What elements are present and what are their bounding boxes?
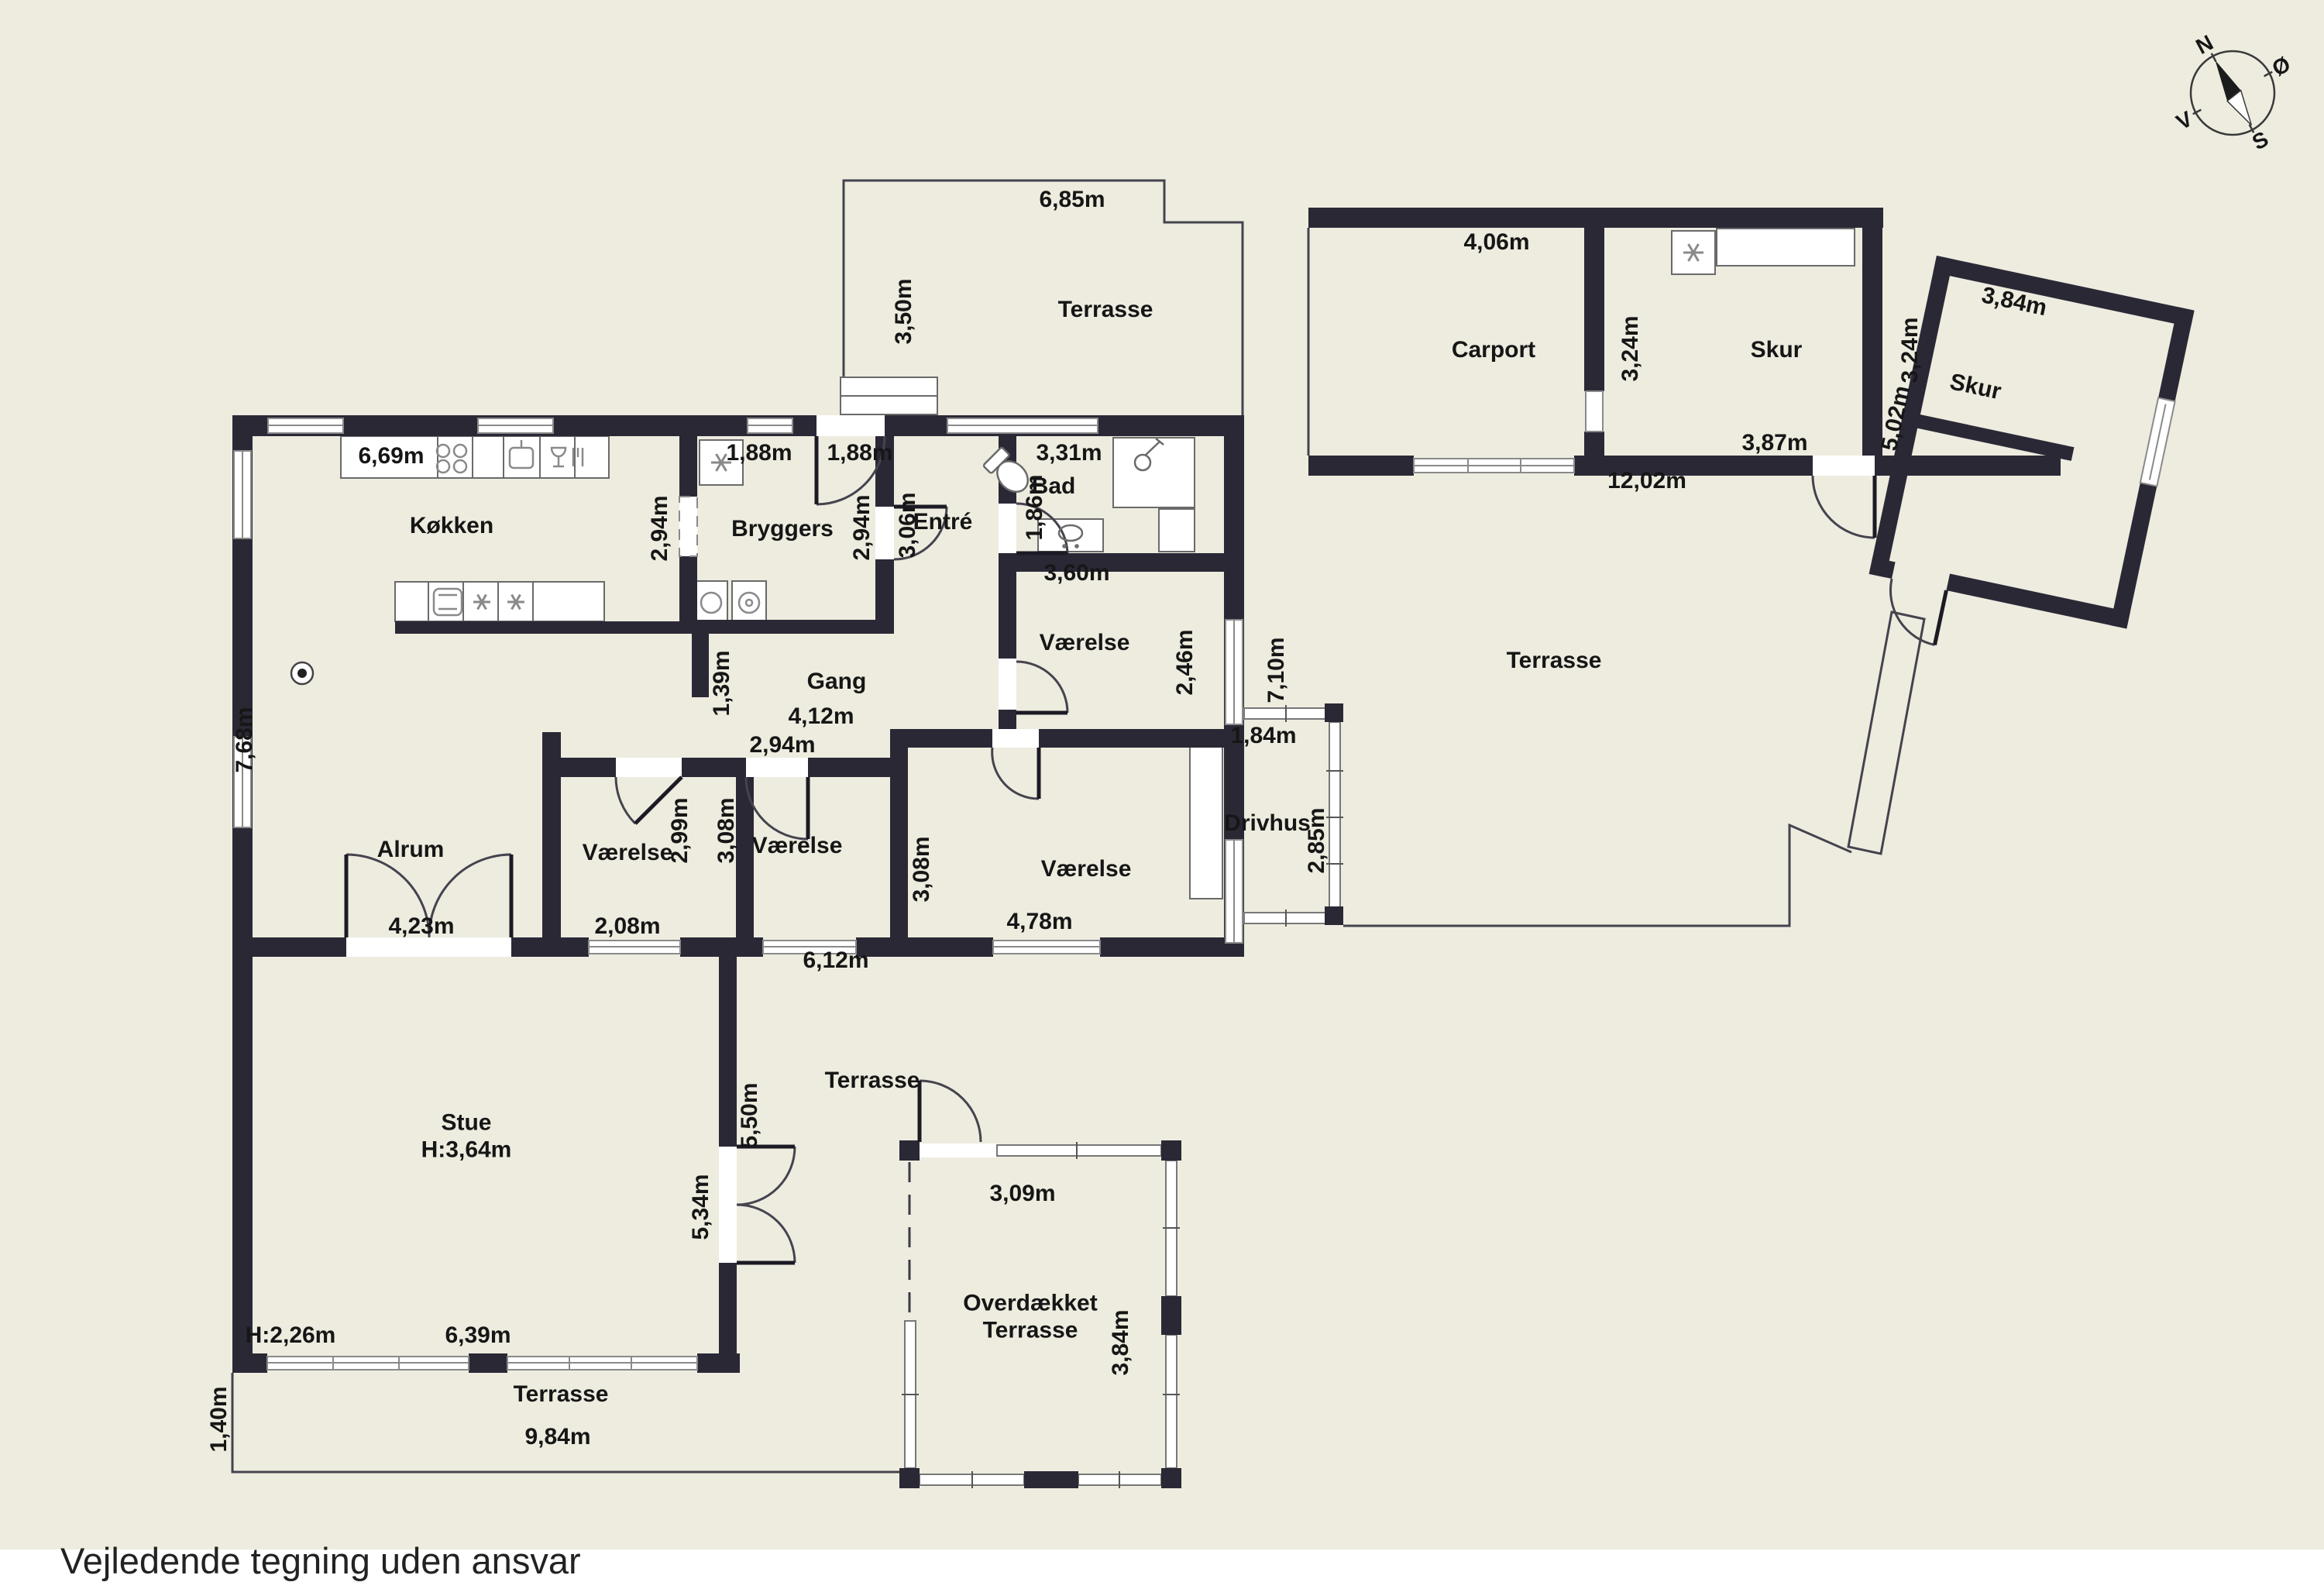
dim-label: 4,06m — [1463, 229, 1529, 256]
room-label-terrasse-top: Terrasse — [1058, 297, 1153, 324]
dim-label: 4,78m — [1006, 909, 1072, 936]
dim-label: 1,39m — [709, 650, 736, 716]
dim-label: 3,24m — [1618, 315, 1645, 381]
dim-label: H:2,26m — [246, 1322, 336, 1350]
dim-label: 2,94m — [849, 494, 876, 560]
ceiling-lamp-icon — [291, 662, 313, 684]
dim-label: 12,02m — [1607, 468, 1686, 495]
room-label-koekken: Køkken — [410, 513, 493, 540]
dim-label: 3,50m — [891, 278, 918, 344]
room-label-entre: Entré — [913, 509, 973, 536]
dim-label: 3,24m — [1897, 317, 1924, 383]
dim-label: 3,60m — [1043, 560, 1109, 587]
dim-label: 1,40m — [206, 1386, 233, 1452]
floor-plan-page: Terrasse Carport Skur Skur Terrasse Køkk… — [0, 0, 2324, 1549]
dim-label: 1,86m — [1022, 474, 1049, 540]
room-label-gang: Gang — [807, 669, 867, 696]
room-label-vaerelse-1: Værelse — [583, 840, 673, 867]
room-label-skur-1: Skur — [1751, 337, 1803, 364]
dim-label: 5,34m — [688, 1174, 715, 1240]
dim-label: 5,50m — [737, 1082, 764, 1148]
room-label-stue: Stue H:3,64m — [421, 1110, 512, 1164]
dim-label: 7,10m — [1263, 637, 1291, 703]
dim-label: 3,87m — [1741, 430, 1807, 457]
disclaimer-text: Vejledende tegning uden ansvar — [60, 1540, 581, 1582]
floor-plan-drawing — [0, 0, 2324, 1549]
room-label-vaerelse-2: Værelse — [752, 833, 843, 860]
dim-label: 2,85m — [1304, 807, 1331, 873]
entry-door-opening — [816, 415, 885, 436]
room-label-terrasse-bottom: Terrasse — [514, 1381, 609, 1408]
dim-label: 3,06m — [895, 492, 922, 558]
room-label-overdaekket: Overdækket Terrasse — [963, 1291, 1097, 1344]
kitchen-island — [395, 582, 604, 621]
room-label-terrasse-mid: Terrasse — [825, 1068, 920, 1095]
room-label-terrasse-east: Terrasse — [1507, 648, 1602, 675]
room-label-alrum: Alrum — [377, 837, 445, 864]
walls — [232, 208, 2061, 1373]
entry-step — [841, 396, 937, 414]
dim-label: 2,94m — [647, 495, 674, 561]
washing-machine — [732, 581, 766, 621]
dim-label: 4,12m — [788, 703, 854, 731]
dim-label: 1,88m — [827, 440, 892, 467]
dim-label: 3,84m — [1108, 1309, 1135, 1375]
bath-cabinet — [1159, 509, 1195, 552]
dim-label: 2,94m — [749, 732, 815, 759]
room-label-vaerelse-3: Værelse — [1041, 856, 1132, 883]
room-label-drivhus: Drivhus — [1224, 810, 1311, 837]
wardrobe — [1190, 732, 1222, 899]
dim-label: 2,08m — [594, 913, 660, 941]
right-terrace-outline — [1343, 825, 1851, 926]
dim-label: 9,84m — [524, 1424, 590, 1451]
door-opening — [920, 1144, 997, 1157]
dim-label: 6,85m — [1039, 187, 1105, 214]
dim-label: 3,31m — [1036, 440, 1102, 467]
dim-label: 3,09m — [989, 1181, 1055, 1208]
dim-label: 2,99m — [667, 797, 694, 863]
dim-label: 1,88m — [726, 440, 792, 467]
dim-label: 3,08m — [713, 797, 741, 863]
dim-label: 3,08m — [909, 836, 936, 902]
room-label-bryggers: Bryggers — [731, 516, 834, 543]
dim-label: 6,39m — [445, 1322, 511, 1350]
dim-label: 6,69m — [358, 443, 424, 470]
dim-label: 2,46m — [1172, 629, 1199, 695]
compass-icon — [2172, 33, 2294, 154]
room-label-vaerelse-ne: Værelse — [1040, 630, 1130, 657]
entry-step — [841, 377, 937, 396]
workbench — [1717, 229, 1855, 266]
dim-label: 4,23m — [388, 913, 454, 941]
washing-machine — [695, 581, 727, 621]
dim-label: 7,68m — [232, 707, 259, 772]
terrace-outlines — [232, 181, 1924, 1472]
ramp-outline — [1848, 612, 1924, 854]
dim-label: 6,12m — [803, 947, 868, 975]
door-leaf — [1934, 590, 1946, 645]
room-label-carport: Carport — [1452, 337, 1535, 364]
dim-label: 1,84m — [1230, 723, 1296, 750]
